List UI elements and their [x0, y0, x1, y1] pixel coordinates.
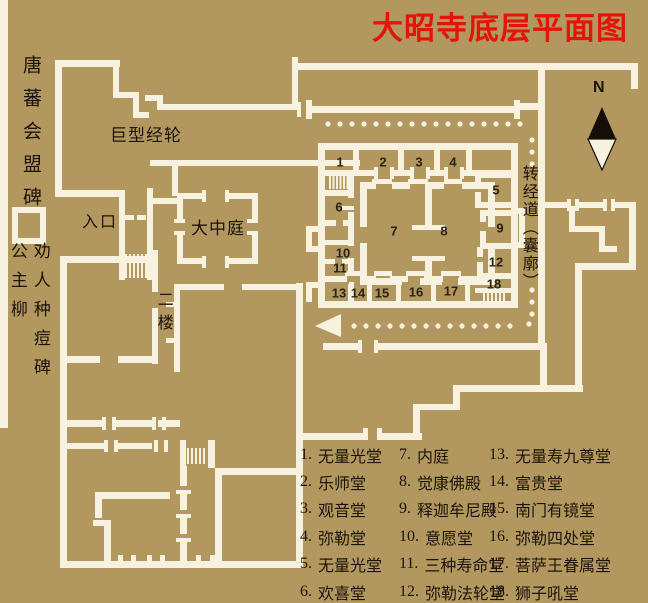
compass-needle-icon [588, 107, 616, 170]
legend-item-number: 15. [489, 500, 509, 518]
legend-item: 1.无量光堂 [300, 441, 399, 468]
room-number-marker: 13 [332, 286, 346, 301]
label-entrance: 入口 [82, 215, 118, 232]
legend-item: 13.无量寿九尊堂 [489, 441, 646, 468]
room-number-marker: 6 [335, 200, 342, 215]
label-giant-prayer-wheel: 巨型经轮 [110, 127, 182, 145]
compass-north-label: N [593, 80, 605, 97]
legend-item-number: 8. [399, 473, 411, 491]
room-number-marker: 11 [333, 261, 347, 276]
legend-item: 3.观音堂 [300, 496, 399, 523]
legend-item-number: 12. [399, 583, 419, 601]
legend-item: 6.欢喜堂 [300, 578, 399, 603]
legend-item: 4.弥勒堂 [300, 523, 399, 550]
legend-item: 16.弥勒四处堂 [489, 523, 646, 550]
room-number-marker: 12 [489, 255, 503, 270]
legend-item-name: 弥勒四处堂 [515, 525, 595, 549]
legend-item-name: 狮子吼堂 [515, 580, 579, 603]
room-number-marker: 7 [390, 224, 397, 239]
legend-item-number: 2. [300, 473, 312, 491]
legend-item-name: 内庭 [417, 443, 449, 467]
legend: 1.无量光堂2.乐师堂3.观音堂4.弥勒堂5.无量光堂6.欢喜堂7.内庭8.觉康… [300, 441, 646, 603]
legend-item-name: 释迦牟尼殿 [417, 497, 497, 521]
legend-item-number: 7. [399, 446, 411, 464]
legend-item-number: 1. [300, 446, 312, 464]
room-number-marker: 5 [492, 183, 499, 198]
legend-item-number: 5. [300, 555, 312, 573]
room-number-marker: 9 [496, 221, 503, 236]
legend-item-number: 4. [300, 528, 312, 546]
legend-item-name: 欢喜堂 [318, 580, 366, 603]
map-title: 大昭寺底层平面图 [372, 13, 628, 46]
legend-item-number: 10. [399, 528, 419, 546]
label-grand-courtyard: 大中庭 [191, 220, 245, 238]
legend-item: 15.南门有镜堂 [489, 496, 646, 523]
legend-item: 9.释迦牟尼殿 [399, 496, 489, 523]
legend-item: 7.内庭 [399, 441, 489, 468]
legend-item-number: 13. [489, 446, 509, 464]
label-princess-willow: 公主柳 [8, 242, 26, 329]
legend-item-name: 富贵堂 [515, 470, 563, 494]
legend-item-number: 16. [489, 528, 509, 546]
room-number-marker: 8 [440, 224, 447, 239]
legend-item-number: 3. [300, 500, 312, 518]
legend-item-name: 南门有镜堂 [515, 497, 595, 521]
legend-item-name: 乐师堂 [318, 470, 366, 494]
label-tangbo-monument: 唐蕃会盟碑 [20, 55, 40, 220]
legend-item-name: 弥勒堂 [318, 525, 366, 549]
room-number-marker: 4 [449, 155, 456, 170]
legend-item: 14.富贵堂 [489, 468, 646, 495]
circuit-arrow-icon [315, 314, 341, 337]
legend-item-number: 9. [399, 500, 411, 518]
label-vaccination-monument: 劝人种痘碑 [31, 242, 49, 387]
label-prayer-circuit: 转经道（囊廓） [519, 165, 536, 291]
legend-item-number: 11. [399, 555, 418, 573]
legend-item-name: 意愿堂 [425, 525, 473, 549]
legend-item: 12.弥勒法轮堂 [399, 578, 489, 603]
legend-item: 5.无量光堂 [300, 551, 399, 578]
legend-column: 7.内庭8.觉康佛殿9.释迦牟尼殿10.意愿堂11.三种寿命堂12.弥勒法轮堂 [399, 441, 489, 603]
legend-item-number: 6. [300, 583, 312, 601]
legend-item-name: 菩萨王眷属堂 [515, 552, 611, 576]
legend-item-number: 14. [489, 473, 509, 491]
legend-column: 13.无量寿九尊堂14.富贵堂15.南门有镜堂16.弥勒四处堂17.菩萨王眷属堂… [489, 441, 646, 603]
page-margin [0, 0, 8, 428]
legend-item-name: 无量光堂 [318, 443, 382, 467]
room-number-marker: 16 [409, 285, 423, 300]
legend-item-number: 17. [489, 555, 509, 573]
room-number-marker: 17 [444, 284, 458, 299]
legend-item-name: 觉康佛殿 [417, 470, 481, 494]
legend-item: 18.狮子吼堂 [489, 578, 646, 603]
label-second-floor: 二楼 [154, 291, 171, 337]
room-number-marker: 2 [379, 155, 386, 170]
room-number-marker: 14 [351, 286, 365, 301]
room-number-marker: 10 [336, 246, 350, 261]
room-number-marker: 15 [375, 286, 389, 301]
legend-item-name: 无量光堂 [318, 552, 382, 576]
room-number-marker: 1 [336, 155, 343, 170]
legend-item: 10.意愿堂 [399, 523, 489, 550]
legend-item: 11.三种寿命堂 [399, 551, 489, 578]
jokhang-floorplan-map: 大昭寺底层平面图 唐蕃会盟碑 公主柳 劝人种痘碑 巨型经轮 入口 大中庭 二楼 … [0, 0, 648, 603]
room-number-marker: 18 [487, 277, 501, 292]
legend-item: 2.乐师堂 [300, 468, 399, 495]
legend-item: 17.菩萨王眷属堂 [489, 551, 646, 578]
legend-column: 1.无量光堂2.乐师堂3.观音堂4.弥勒堂5.无量光堂6.欢喜堂 [300, 441, 399, 603]
room-number-marker: 3 [415, 155, 422, 170]
legend-item-number: 18. [489, 583, 509, 601]
legend-item-name: 无量寿九尊堂 [515, 443, 611, 467]
legend-item: 8.觉康佛殿 [399, 468, 489, 495]
legend-item-name: 观音堂 [318, 497, 366, 521]
